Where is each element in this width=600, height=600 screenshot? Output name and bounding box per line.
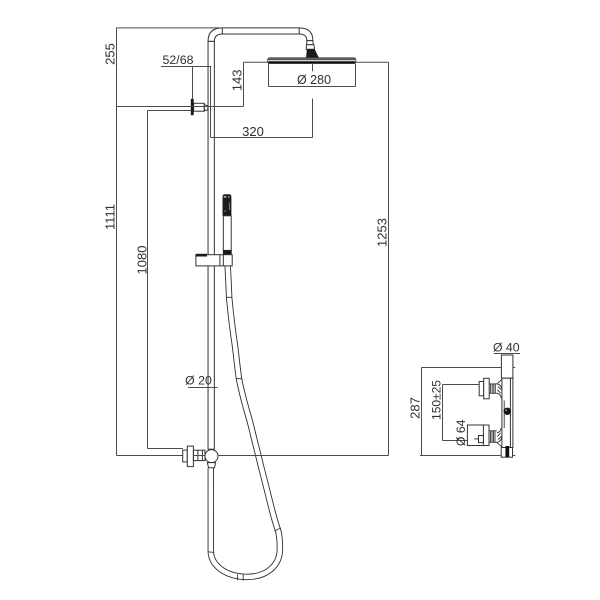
svg-text:52/68: 52/68	[162, 53, 193, 67]
svg-text:1253: 1253	[375, 218, 390, 247]
svg-text:150±25: 150±25	[429, 380, 443, 420]
svg-text:143: 143	[230, 70, 245, 92]
svg-text:1080: 1080	[134, 246, 149, 275]
svg-text:Ø 40: Ø 40	[493, 341, 520, 355]
svg-text:Ø 64: Ø 64	[454, 419, 468, 446]
svg-text:287: 287	[408, 397, 423, 419]
svg-text:320: 320	[242, 124, 264, 139]
svg-text:Ø 280: Ø 280	[297, 73, 331, 87]
svg-text:Ø 20: Ø 20	[185, 373, 212, 387]
svg-text:1111: 1111	[102, 204, 117, 230]
svg-text:255: 255	[103, 43, 118, 65]
